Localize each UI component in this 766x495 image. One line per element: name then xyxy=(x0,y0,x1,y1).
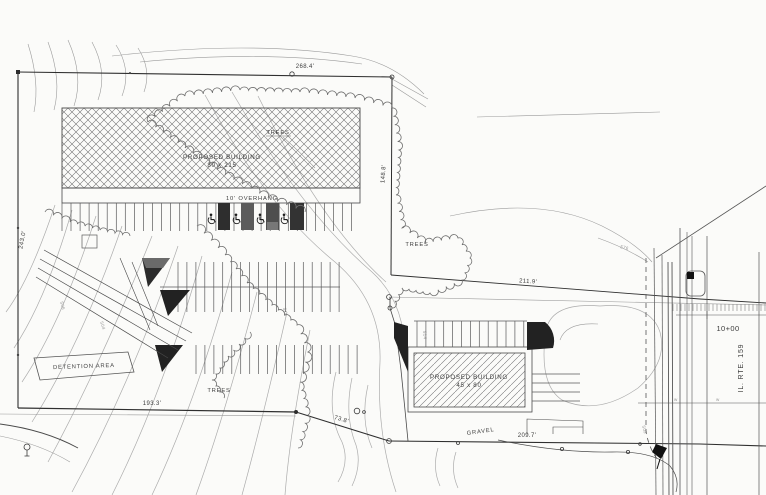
scanned-site-plan-sheet: 506 504 510 514 502 576 268.4' xyxy=(0,0,766,495)
dim-east: 148.8' xyxy=(380,164,387,183)
parking-island-round xyxy=(527,322,554,350)
water-marker: w xyxy=(674,397,678,402)
gravel-label: GRAVEL xyxy=(466,427,494,437)
contour-label: 576 xyxy=(620,244,630,251)
parking-island-shade xyxy=(142,258,170,268)
dim-southwest: 193.3' xyxy=(143,401,162,407)
parking-row-south xyxy=(196,345,357,374)
contour-label: 514 xyxy=(422,331,428,340)
parking-row-mid-lower xyxy=(178,287,339,312)
building-1-footprint xyxy=(62,108,360,188)
enclosure xyxy=(82,235,97,248)
building-1-label: PROPOSED BUILDING xyxy=(183,154,261,161)
road-il-rte-159: 10+00 IL. RTE. 159 w w xyxy=(638,186,766,495)
stall-shade xyxy=(267,222,278,230)
parking-island xyxy=(394,322,408,372)
structure-marker xyxy=(687,272,694,279)
station-label: 10+00 xyxy=(716,324,739,333)
route-label: IL. RTE. 159 xyxy=(738,344,745,393)
trees-label: TREES xyxy=(405,242,428,248)
accessible-stall xyxy=(218,203,230,230)
trees-label: TREES xyxy=(207,388,230,394)
site-plan-drawing: 506 504 510 514 502 576 268.4' xyxy=(0,0,766,495)
pavement-band xyxy=(670,304,766,311)
parking-row-east xyxy=(417,321,524,347)
parking-row-north xyxy=(62,203,352,231)
monument-icon xyxy=(24,444,30,450)
building-2-label: PROPOSED BUILDING xyxy=(430,374,508,381)
dim-connector: 73.8' xyxy=(333,415,349,425)
dim-north: 268.4' xyxy=(296,64,315,70)
parking-island xyxy=(160,290,190,316)
detention-label: DETENTION AREA xyxy=(53,363,115,371)
contour-label: 504 xyxy=(99,321,106,331)
parking-row-mid-upper xyxy=(178,262,339,287)
hydrant-symbol xyxy=(652,444,667,459)
building-2: PROPOSED BUILDING 45 x 80 xyxy=(408,347,532,412)
overhang-label: 10' OVERHANG xyxy=(226,196,278,202)
dim-northeast: 211.9' xyxy=(519,278,537,285)
tree-line xyxy=(45,209,130,236)
accessible-stall xyxy=(241,203,254,230)
building-1-overhang xyxy=(62,188,360,203)
trees-label: TREES xyxy=(266,130,289,136)
dim-west: 243.0' xyxy=(18,230,27,249)
water-marker: w xyxy=(716,397,720,402)
survey-symbols xyxy=(24,444,30,456)
building-2-size: 45 x 80 xyxy=(456,382,481,389)
corner-monument xyxy=(16,70,20,74)
parking-island xyxy=(155,345,183,372)
contour-label: 506 xyxy=(59,301,66,311)
contour-label: 502 xyxy=(641,425,648,435)
